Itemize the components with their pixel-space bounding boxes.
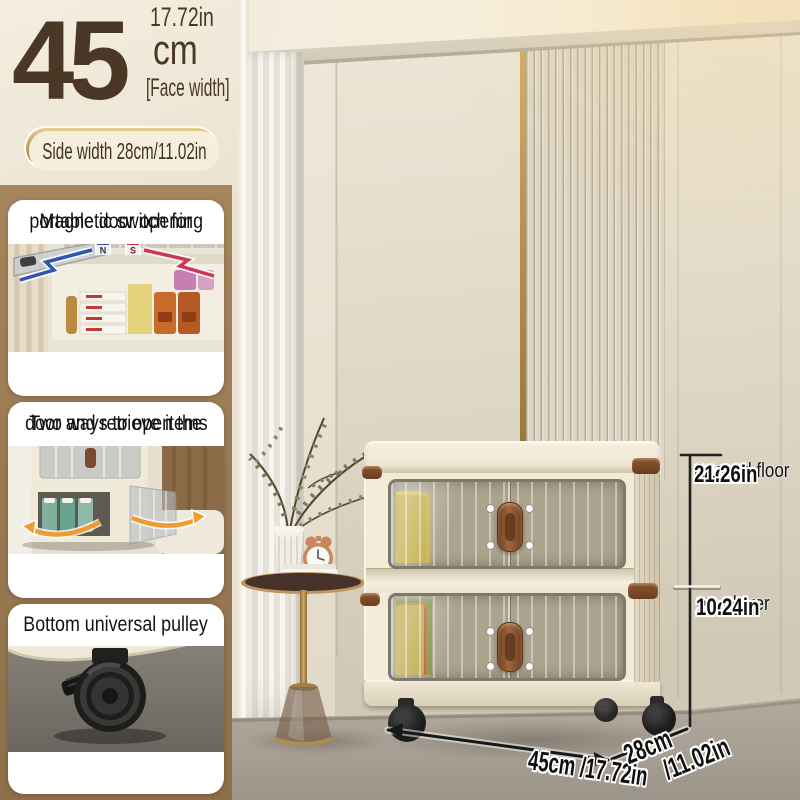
hinge-dot	[525, 541, 534, 550]
door-handle	[497, 502, 523, 552]
face-width-unit: cm	[153, 26, 198, 74]
top-box-door	[388, 479, 626, 569]
feature-card-pulley: Bottom universal pulley	[8, 604, 224, 794]
cabinet-lid	[364, 441, 660, 473]
stack-seam	[366, 569, 658, 593]
hinge-dot	[486, 504, 495, 513]
wall-seam	[677, 28, 679, 698]
feature-card-two-ways-open: Two ways to open the door and retrieve i…	[8, 402, 224, 598]
door-handle	[497, 622, 523, 672]
feature-caption: Bottom universal pulley	[8, 604, 224, 646]
fluted-wall-panel	[526, 28, 665, 480]
feature-card-magnetic-switch: N S Magnetic switch for portable door op…	[8, 200, 224, 396]
round-side-table	[241, 572, 365, 744]
side-handle	[628, 583, 658, 599]
magnet-n-label: N	[100, 246, 107, 256]
hinge-dot	[486, 627, 495, 636]
side-handle	[362, 466, 382, 479]
feature-caption: Two ways to open the door and retrieve i…	[8, 402, 224, 446]
caster-wheel	[594, 698, 618, 722]
hinge-dot	[486, 541, 495, 550]
magnet-s-label: S	[130, 246, 136, 256]
face-width-label: [Face width]	[146, 74, 230, 103]
storage-cabinet	[364, 441, 660, 706]
hinge-dot	[525, 504, 534, 513]
feature-sidebar: N S Magnetic switch for portable door op…	[0, 185, 232, 800]
side-width-badge: Side width 28cm/11.02in	[26, 128, 216, 168]
face-width-value: 45	[12, 16, 125, 106]
one-layer-in: 10.24in	[696, 594, 759, 622]
hinge-dot	[525, 662, 534, 671]
feature-caption: Magnetic switch for portable door openin…	[8, 200, 224, 244]
hinge-dot	[486, 662, 495, 671]
side-width-badge-text: Side width 28cm/11.02in	[42, 138, 206, 165]
hinge-dot	[525, 627, 534, 636]
caster-wheel	[388, 704, 426, 742]
second-floor-in: 21.26in	[694, 461, 757, 489]
bottom-box-door	[388, 593, 626, 681]
cabinet-side-panel	[634, 471, 660, 682]
side-handle	[360, 593, 380, 606]
product-showcase-image: Second floor 54cm 21.26in One layer 26cm…	[0, 0, 800, 800]
wall-seam	[780, 22, 782, 694]
side-handle	[632, 458, 660, 474]
